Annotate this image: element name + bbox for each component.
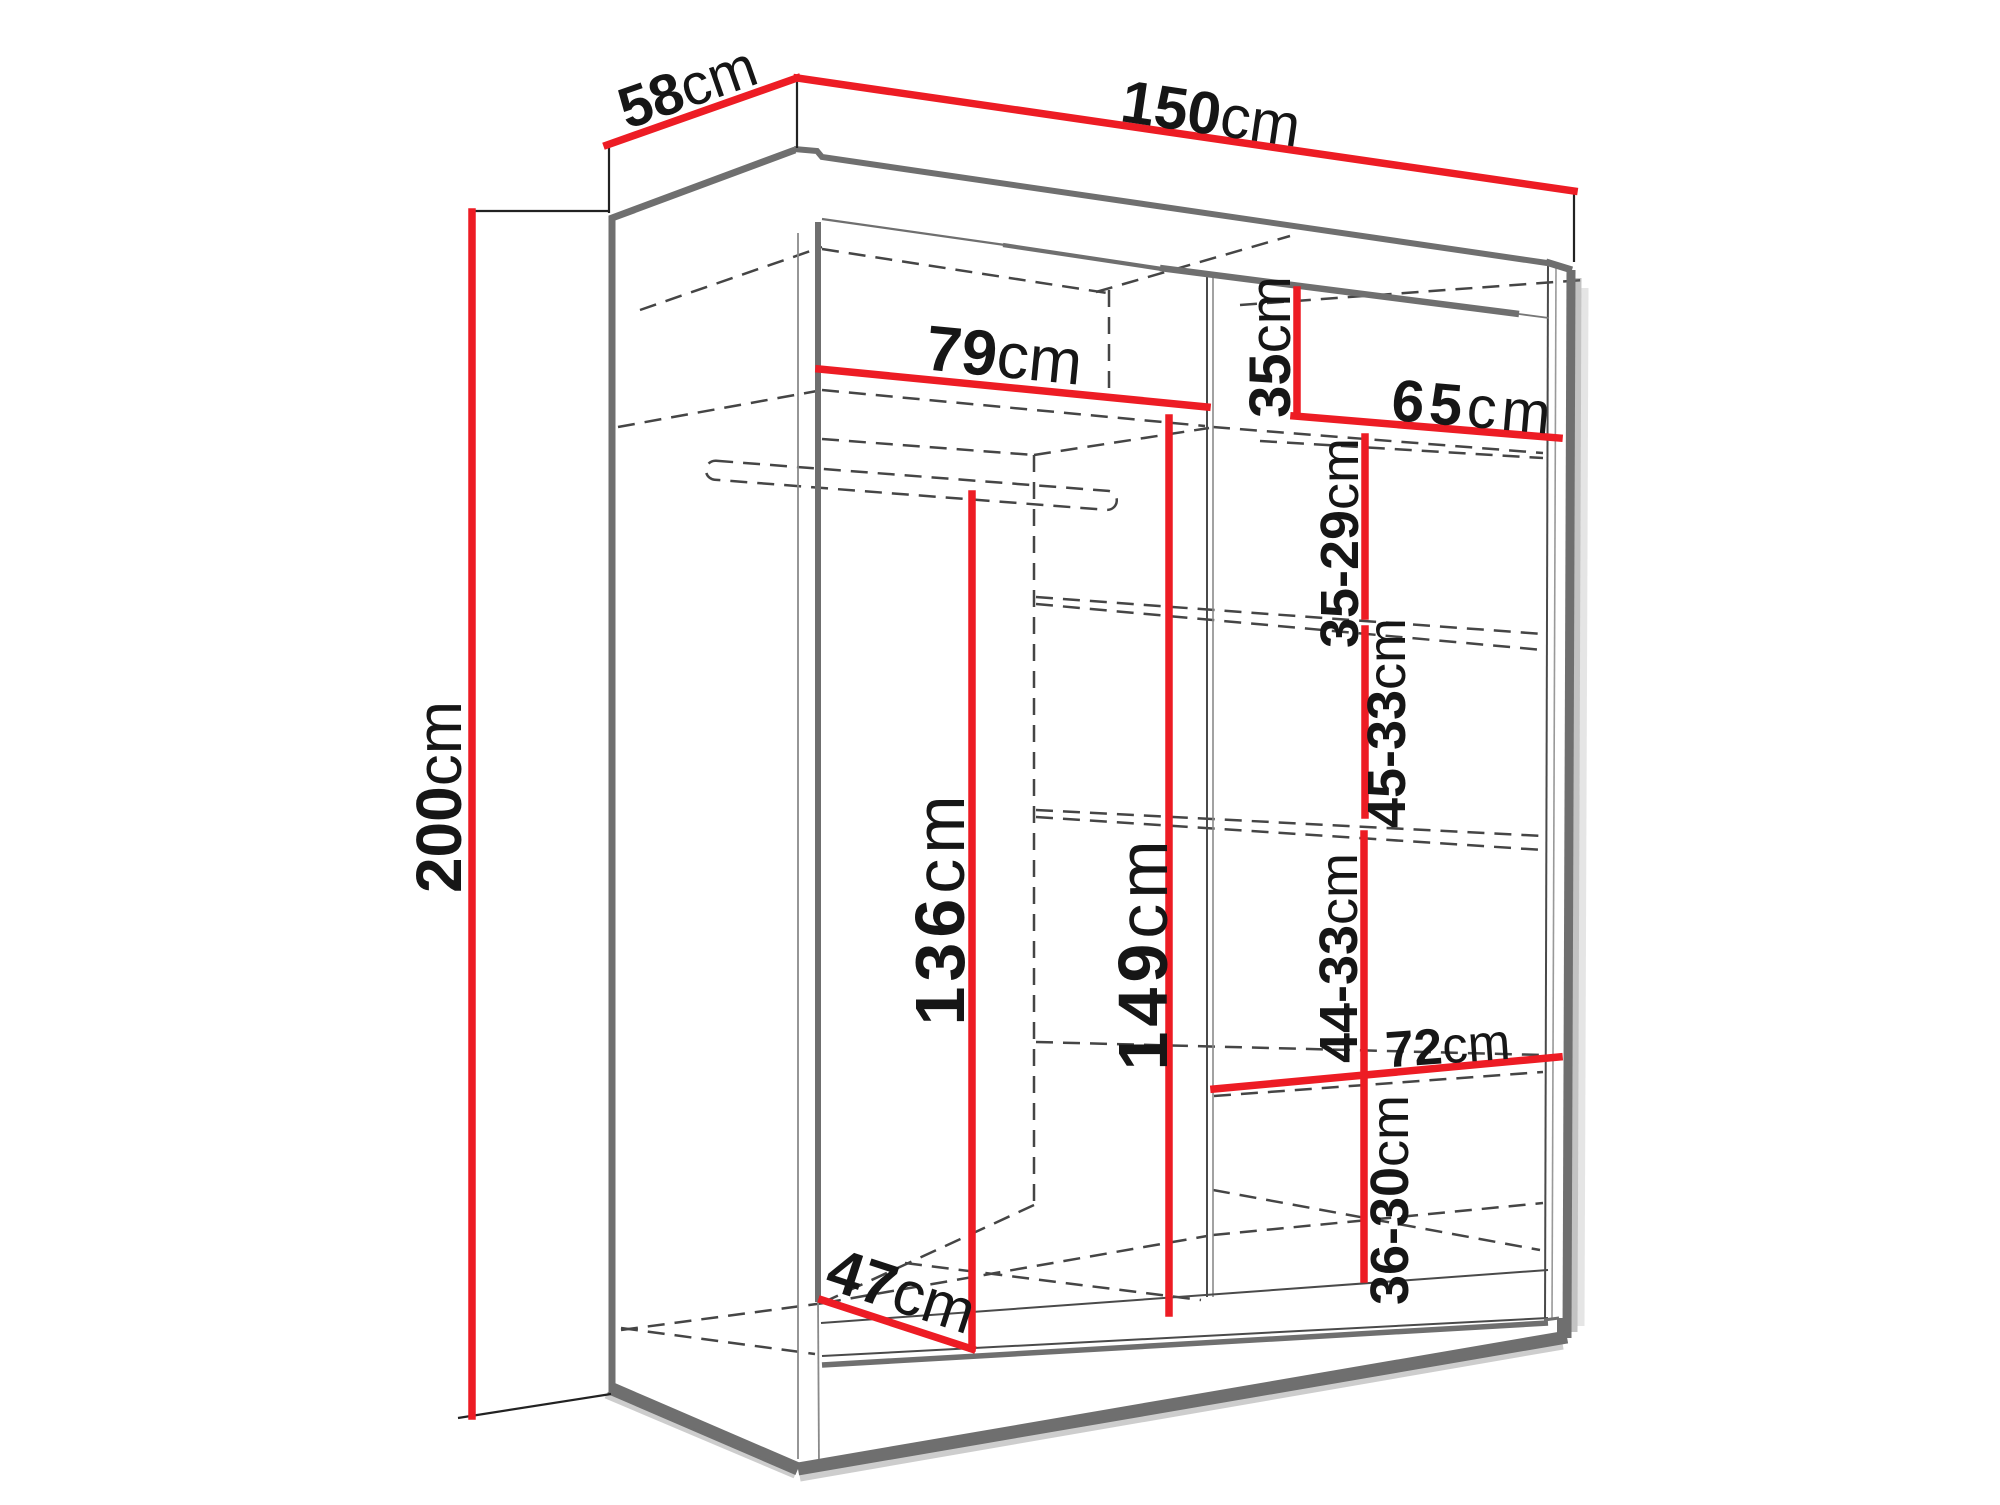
svg-text:45-33cm: 45-33cm bbox=[1357, 618, 1417, 828]
svg-text:136cm: 136cm bbox=[901, 790, 979, 1025]
svg-text:35-29cm: 35-29cm bbox=[1310, 438, 1370, 648]
svg-text:72cm: 72cm bbox=[1384, 1013, 1512, 1079]
svg-text:200cm: 200cm bbox=[403, 701, 475, 893]
svg-text:36-30cm: 36-30cm bbox=[1360, 1095, 1420, 1305]
svg-text:149cm: 149cm bbox=[1104, 835, 1182, 1070]
svg-text:35cm: 35cm bbox=[1238, 276, 1303, 418]
svg-text:44-33cm: 44-33cm bbox=[1309, 853, 1369, 1063]
